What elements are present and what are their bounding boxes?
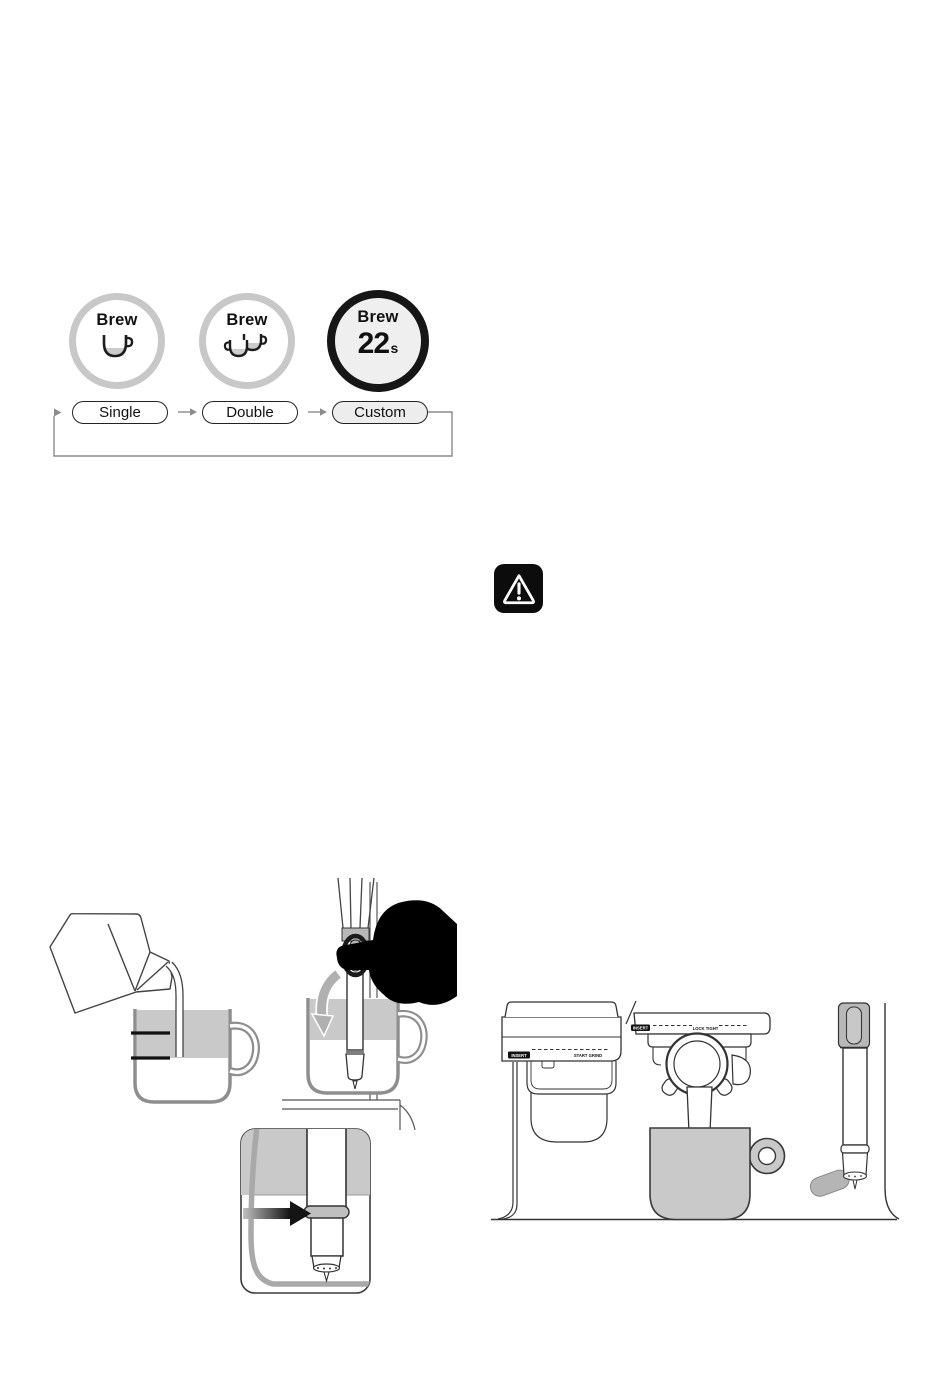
wand-ring (841, 1145, 869, 1153)
pour-milk-illustration (40, 900, 270, 1115)
grinder-hopper (505, 1002, 618, 1017)
portafilter-spout (732, 1055, 750, 1085)
step-pill-label: Double (226, 404, 274, 421)
cycle-arrow-head (190, 408, 197, 416)
wand-mount-tubes (338, 878, 374, 928)
cycle-arrow-head (320, 408, 327, 416)
manual-page: Brew Brew (0, 0, 950, 1383)
wand-depth-ring (304, 1206, 349, 1218)
warning-triangle-icon (494, 564, 543, 613)
step-pill-label: Single (99, 404, 141, 421)
milk-carton (50, 914, 172, 1013)
step-pill-double: Double (202, 401, 298, 424)
grinder-insert-label: INSERT (511, 1053, 527, 1058)
machine-views-illustration: INSERT START GRIND INSERT LOCK TIGHT (485, 980, 913, 1225)
step-pill-label: Custom (354, 404, 406, 421)
brew-button-single: Brew (69, 293, 165, 389)
wand-depth-closeup-illustration (237, 1127, 373, 1297)
coffee-mug (650, 1128, 750, 1220)
machine-edge (885, 1003, 899, 1219)
steamwand-view (808, 1003, 899, 1219)
step-pill-single: Single (72, 401, 168, 424)
grinder-view: INSERT START GRIND (498, 1002, 621, 1219)
milk-fill (241, 1129, 370, 1195)
brew-button-custom: Brew 22 s (327, 290, 429, 392)
lower-steam-wand-illustration (280, 878, 475, 1130)
brew-timer: 22 s (358, 327, 399, 361)
brew-button-label: Brew (226, 311, 267, 330)
frother-tip (346, 1054, 364, 1080)
single-cup-icon (98, 333, 136, 365)
grouphead-insert-label: INSERT (633, 1026, 649, 1031)
step-pill-custom: Custom (332, 401, 428, 424)
grouphead-view: INSERT LOCK TIGHT (626, 1001, 785, 1220)
wand-shaft (843, 1048, 867, 1145)
grinder-action-label: START GRIND (574, 1053, 602, 1058)
brew-timer-value: 22 (358, 327, 389, 361)
portafilter-handle (687, 1087, 712, 1132)
brew-cycle-diagram: Brew Brew (0, 0, 470, 470)
brew-button-label: Brew (357, 308, 398, 327)
cycle-arrow-head (54, 409, 62, 417)
grouphead-action-label: LOCK TIGHT (693, 1026, 719, 1031)
double-cup-icon (222, 333, 272, 368)
brew-button-double: Brew (199, 293, 295, 389)
brew-timer-unit: s (391, 340, 399, 356)
brew-button-label: Brew (96, 311, 137, 330)
